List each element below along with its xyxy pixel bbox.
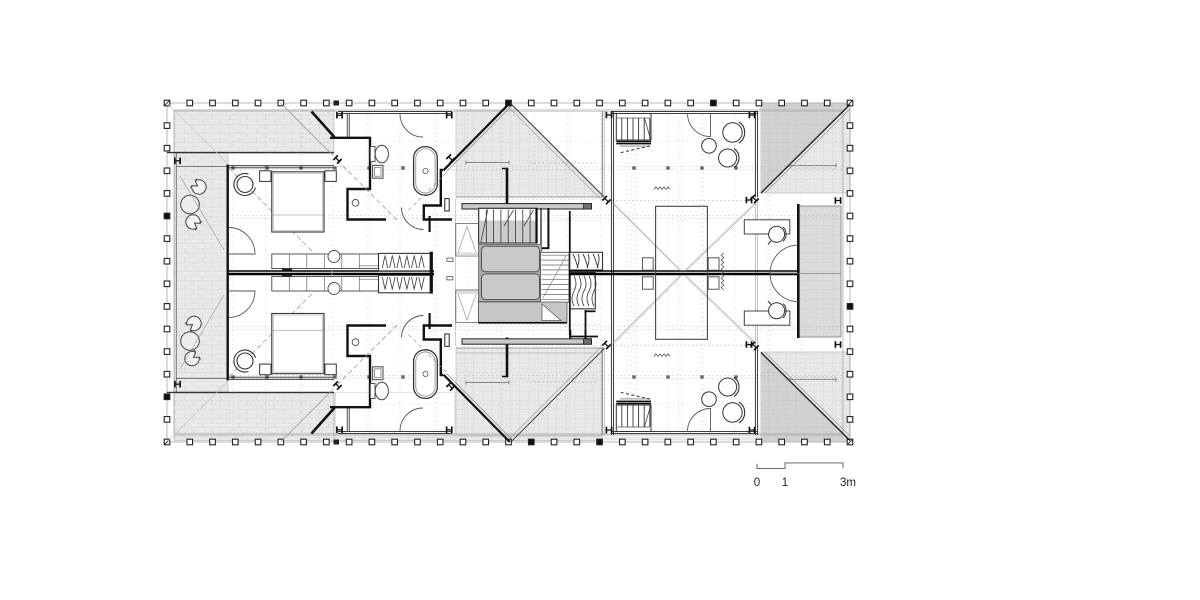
svg-text:3m: 3m (840, 477, 856, 489)
svg-text:1: 1 (782, 477, 788, 489)
svg-text:0: 0 (754, 477, 760, 489)
